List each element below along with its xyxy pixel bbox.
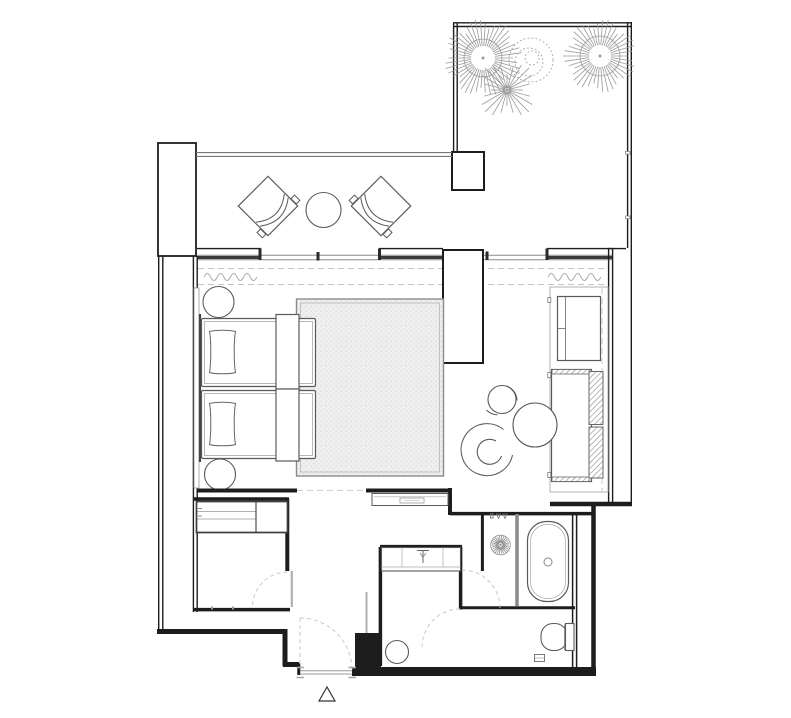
zone-tab-1 <box>548 298 551 303</box>
bed-runner-north <box>276 315 299 390</box>
bed-runner-south <box>276 389 299 461</box>
nightstand-north <box>203 287 234 318</box>
vanity-stool <box>386 641 409 664</box>
west-wall-top-block <box>158 143 196 256</box>
rug <box>297 299 444 476</box>
window-mullion-1 <box>259 249 262 261</box>
nightstand-south <box>205 459 236 490</box>
window-mullion-5 <box>546 249 549 261</box>
balcony-round-table <box>306 193 341 228</box>
toilet-bowl <box>541 624 567 651</box>
lounge-round-table <box>513 403 557 447</box>
pillow-south <box>210 402 236 446</box>
floor-plan-canvas <box>0 0 791 718</box>
window-mullion-4 <box>486 252 489 261</box>
terrace-wall-tick-upper <box>626 152 631 155</box>
zone-tab-3 <box>548 473 551 478</box>
zone-tab-2 <box>548 373 551 378</box>
sofa-backrest-lower <box>589 427 603 478</box>
tree-star-south-center <box>506 89 509 92</box>
shower-head-rosette-center <box>499 544 501 546</box>
bathtub <box>528 522 569 602</box>
terrace-column <box>452 152 484 190</box>
wardrobe-cabinet <box>197 502 288 533</box>
entry-right-jamb-block <box>355 633 381 669</box>
toilet-tank <box>566 624 575 651</box>
west-wall-pocket <box>194 288 199 488</box>
terrace-wall-tick-lower <box>626 216 631 219</box>
tree-burst-east-center <box>599 55 602 58</box>
tree-burst-west-center <box>482 57 485 60</box>
north-pier-block <box>443 250 483 363</box>
pillow-north <box>210 330 236 374</box>
floor-plan-page <box>0 0 791 718</box>
window-mullion-3 <box>378 249 381 261</box>
window-mullion-2 <box>317 252 320 261</box>
sofa-armrest-top <box>552 370 589 375</box>
sofa-backrest-upper <box>589 372 603 425</box>
sofa-armrest-bottom <box>552 477 589 482</box>
vanity-cabinet <box>382 548 461 572</box>
